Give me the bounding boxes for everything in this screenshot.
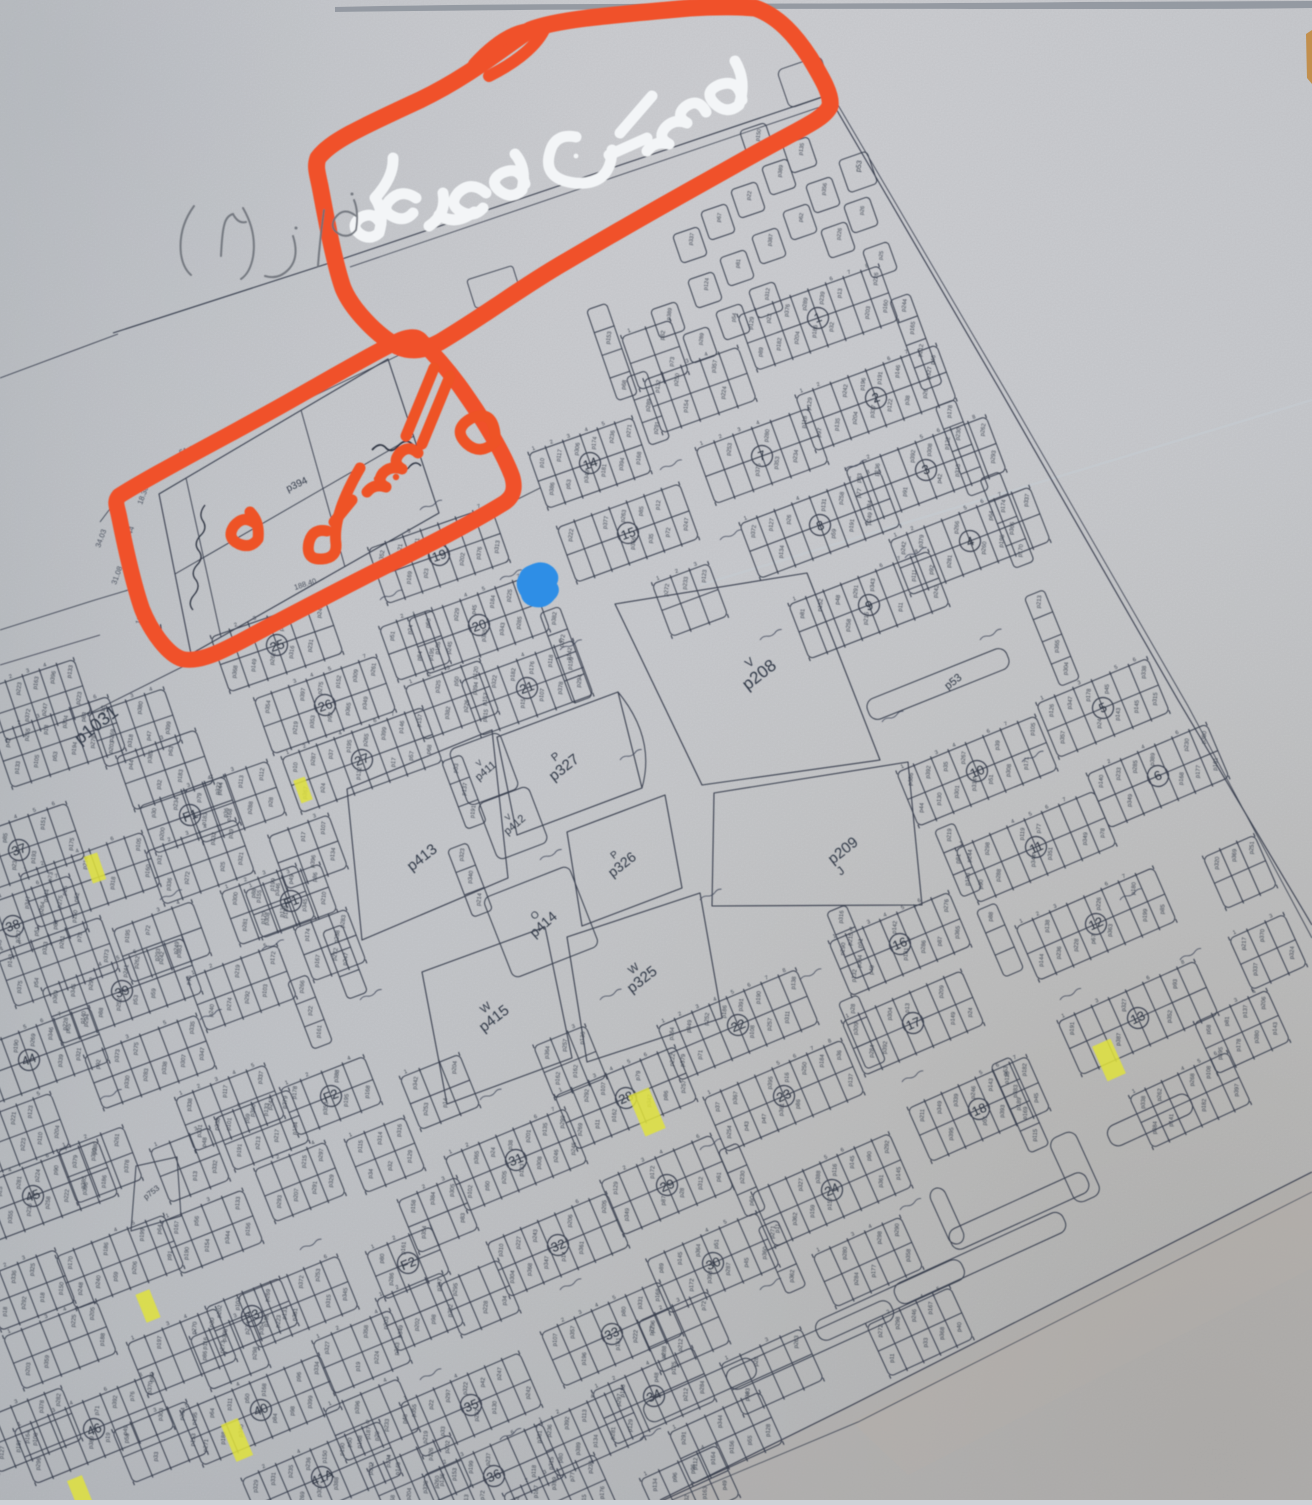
svg-text:p230: p230 xyxy=(588,1460,595,1473)
svg-text:p153: p153 xyxy=(190,1433,197,1446)
svg-text:p178: p178 xyxy=(1086,688,1093,701)
svg-text:p308: p308 xyxy=(1006,764,1013,777)
svg-text:p232: p232 xyxy=(684,1494,691,1500)
svg-text:p55: p55 xyxy=(747,1435,754,1445)
svg-text:p399: p399 xyxy=(552,1477,559,1490)
svg-text:p22: p22 xyxy=(429,1400,436,1410)
svg-text:p49: p49 xyxy=(722,1480,729,1490)
svg-text:p246: p246 xyxy=(971,1086,978,1099)
svg-text:p167: p167 xyxy=(533,1485,540,1498)
svg-text:p295: p295 xyxy=(452,1283,459,1296)
svg-text:p222: p222 xyxy=(670,1053,677,1066)
svg-text:p327: p327 xyxy=(324,1341,331,1354)
svg-text:p269: p269 xyxy=(577,1123,584,1136)
svg-text:p81: p81 xyxy=(799,608,806,618)
svg-text:p129: p129 xyxy=(613,1181,620,1194)
svg-text:p149: p149 xyxy=(395,1462,402,1475)
svg-text:p338: p338 xyxy=(1141,665,1148,678)
svg-text:p355: p355 xyxy=(411,1404,418,1417)
svg-text:p128: p128 xyxy=(765,1424,772,1437)
svg-text:p286: p286 xyxy=(921,940,928,953)
svg-text:p35: p35 xyxy=(943,761,950,771)
svg-text:p392: p392 xyxy=(564,1416,571,1429)
svg-text:p383: p383 xyxy=(1013,1085,1020,1098)
svg-text:p290: p290 xyxy=(894,1223,901,1236)
svg-text:p177: p177 xyxy=(1195,765,1202,778)
svg-text:p24: p24 xyxy=(1097,718,1104,729)
svg-text:p168: p168 xyxy=(261,1383,268,1396)
svg-text:p113: p113 xyxy=(582,1409,589,1422)
svg-text:p213: p213 xyxy=(463,1494,470,1500)
svg-text:p334: p334 xyxy=(314,1360,321,1374)
svg-text:p219: p219 xyxy=(946,828,953,841)
svg-text:p349: p349 xyxy=(937,1101,944,1114)
svg-text:p133: p133 xyxy=(965,873,972,886)
svg-text:p134: p134 xyxy=(593,1434,600,1448)
svg-text:p85: p85 xyxy=(1160,904,1167,914)
svg-text:p392: p392 xyxy=(925,765,932,778)
svg-text:p158: p158 xyxy=(410,1200,417,1213)
svg-text:p399: p399 xyxy=(307,1395,314,1408)
svg-text:p360: p360 xyxy=(762,1246,769,1259)
svg-text:p172: p172 xyxy=(689,1278,696,1291)
svg-text:p182: p182 xyxy=(1022,1063,1029,1076)
svg-text:p96: p96 xyxy=(691,1464,698,1474)
svg-text:p311: p311 xyxy=(227,1398,234,1411)
svg-text:p329: p329 xyxy=(253,1480,260,1493)
svg-text:p90: p90 xyxy=(53,1165,60,1175)
svg-text:p71: p71 xyxy=(698,1050,705,1060)
svg-text:p391: p391 xyxy=(738,998,745,1011)
svg-text:p254: p254 xyxy=(726,1124,733,1138)
svg-text:p177: p177 xyxy=(871,1264,878,1277)
svg-text:p246: p246 xyxy=(911,1309,918,1322)
svg-text:p212: p212 xyxy=(678,1338,685,1351)
svg-text:p339: p339 xyxy=(953,1093,960,1106)
svg-text:p269: p269 xyxy=(299,1491,306,1500)
svg-text:p119: p119 xyxy=(1019,828,1026,841)
svg-text:p86: p86 xyxy=(663,1090,670,1100)
svg-text:p251: p251 xyxy=(1249,841,1256,854)
svg-text:p250: p250 xyxy=(801,1062,808,1075)
svg-text:p222: p222 xyxy=(633,1330,640,1343)
svg-text:p268: p268 xyxy=(1190,1073,1197,1086)
svg-text:p50: p50 xyxy=(347,1437,354,1447)
svg-text:p292: p292 xyxy=(584,1089,591,1102)
svg-text:p80: p80 xyxy=(558,1453,565,1463)
svg-text:p130: p130 xyxy=(492,1401,499,1414)
svg-text:p22: p22 xyxy=(307,1006,314,1016)
svg-text:p205: p205 xyxy=(501,1171,508,1184)
svg-text:p159: p159 xyxy=(810,1205,817,1218)
svg-text:p284: p284 xyxy=(854,1271,861,1285)
svg-text:p145: p145 xyxy=(849,1156,856,1169)
svg-text:p89: p89 xyxy=(659,1263,666,1273)
svg-text:p130: p130 xyxy=(936,792,943,805)
svg-text:p196: p196 xyxy=(581,1352,588,1365)
svg-text:p45: p45 xyxy=(744,1258,751,1268)
svg-text:p33: p33 xyxy=(923,1338,930,1348)
svg-text:p311: p311 xyxy=(784,1011,791,1024)
svg-text:p395: p395 xyxy=(948,1127,955,1140)
svg-text:p292: p292 xyxy=(884,1140,891,1153)
svg-text:p312: p312 xyxy=(698,1177,705,1190)
svg-text:p34: p34 xyxy=(368,1168,375,1179)
svg-text:p271: p271 xyxy=(770,1226,777,1239)
svg-text:p364: p364 xyxy=(695,1243,702,1257)
svg-text:p102: p102 xyxy=(467,1185,474,1198)
svg-text:p204: p204 xyxy=(406,1487,413,1500)
svg-text:p91: p91 xyxy=(902,487,909,497)
svg-text:p237: p237 xyxy=(486,1453,493,1466)
svg-text:p364: p364 xyxy=(857,954,864,968)
svg-text:p140: p140 xyxy=(1098,775,1105,788)
svg-text:p246: p246 xyxy=(553,1149,560,1162)
svg-text:p389: p389 xyxy=(576,1442,583,1455)
svg-text:p322: p322 xyxy=(463,1382,470,1395)
svg-text:p362: p362 xyxy=(792,1212,799,1225)
svg-text:p50: p50 xyxy=(244,1393,251,1403)
svg-text:p212: p212 xyxy=(683,1388,690,1401)
svg-text:p362: p362 xyxy=(789,1269,796,1282)
svg-text:p358: p358 xyxy=(363,1325,370,1338)
svg-text:p172: p172 xyxy=(650,1166,657,1179)
svg-text:p98: p98 xyxy=(290,1406,297,1416)
svg-text:p357: p357 xyxy=(1060,731,1067,744)
svg-text:p34: p34 xyxy=(502,1295,509,1306)
svg-text:p257: p257 xyxy=(681,1080,688,1093)
svg-text:p206: p206 xyxy=(567,1214,574,1227)
svg-text:p86: p86 xyxy=(202,1351,209,1361)
svg-text:p134: p134 xyxy=(652,1477,659,1491)
svg-text:p58: p58 xyxy=(124,1433,131,1443)
svg-text:p361: p361 xyxy=(878,1174,885,1187)
svg-text:p98: p98 xyxy=(431,1314,438,1324)
svg-text:p86: p86 xyxy=(312,872,319,882)
svg-text:p143: p143 xyxy=(1115,708,1122,721)
svg-text:p135: p135 xyxy=(542,1122,549,1135)
svg-text:p215: p215 xyxy=(848,932,855,945)
svg-text:p176: p176 xyxy=(599,1486,606,1499)
svg-text:p33: p33 xyxy=(440,1426,447,1436)
svg-text:p47: p47 xyxy=(761,1114,768,1124)
svg-text:p365: p365 xyxy=(474,1151,481,1164)
svg-text:p13: p13 xyxy=(192,1171,199,1181)
svg-text:p280: p280 xyxy=(842,1247,849,1260)
svg-text:p137: p137 xyxy=(848,1073,855,1086)
svg-text:p228: p228 xyxy=(1074,938,1081,951)
svg-text:p352: p352 xyxy=(1167,1010,1174,1023)
svg-text:p199: p199 xyxy=(1142,909,1149,922)
svg-text:p156: p156 xyxy=(729,1440,736,1453)
svg-text:p81: p81 xyxy=(956,854,963,864)
svg-text:p59: p59 xyxy=(245,1113,252,1123)
svg-text:p126: p126 xyxy=(1049,704,1056,717)
svg-text:p281: p281 xyxy=(610,1427,617,1440)
svg-text:p143: p143 xyxy=(988,1078,995,1091)
svg-text:p87: p87 xyxy=(661,1196,668,1206)
svg-text:p60: p60 xyxy=(749,1196,756,1206)
svg-text:p77: p77 xyxy=(856,488,863,498)
svg-text:p39: p39 xyxy=(995,740,1002,750)
svg-text:p396: p396 xyxy=(355,1401,362,1414)
svg-text:p19: p19 xyxy=(355,1362,362,1372)
svg-text:p349: p349 xyxy=(686,1020,693,1033)
svg-text:p163: p163 xyxy=(702,1486,709,1499)
svg-text:p309: p309 xyxy=(853,1022,860,1035)
svg-text:p242: p242 xyxy=(526,1386,533,1399)
svg-text:p388: p388 xyxy=(815,1170,822,1183)
svg-text:p211: p211 xyxy=(919,1109,926,1122)
svg-text:p145: p145 xyxy=(896,1167,903,1180)
svg-text:p145: p145 xyxy=(677,1252,684,1265)
svg-text:p327: p327 xyxy=(798,1178,805,1191)
svg-text:p30: p30 xyxy=(209,1318,216,1328)
svg-text:p227: p227 xyxy=(516,1236,523,1249)
svg-text:p161: p161 xyxy=(1213,757,1220,770)
svg-text:p28: p28 xyxy=(850,1004,857,1014)
svg-text:p144: p144 xyxy=(1039,953,1046,967)
svg-text:p301: p301 xyxy=(954,785,961,798)
svg-text:p48: p48 xyxy=(835,595,842,605)
svg-text:p129: p129 xyxy=(628,1419,635,1432)
svg-text:p235: p235 xyxy=(288,1465,295,1478)
svg-text:p61: p61 xyxy=(716,1172,723,1182)
svg-text:p48: p48 xyxy=(202,1137,209,1147)
svg-text:p32: p32 xyxy=(387,1161,394,1171)
svg-text:p107: p107 xyxy=(552,1333,559,1346)
svg-text:p349: p349 xyxy=(624,1208,631,1221)
svg-text:p164: p164 xyxy=(711,1451,718,1465)
svg-text:p233: p233 xyxy=(384,1419,391,1432)
svg-text:p395: p395 xyxy=(1218,1047,1225,1060)
svg-text:p84: p84 xyxy=(272,1412,279,1423)
svg-text:p126: p126 xyxy=(428,1448,435,1461)
svg-text:p167: p167 xyxy=(928,1301,935,1314)
svg-text:p76: p76 xyxy=(129,1391,136,1401)
svg-text:p368: p368 xyxy=(939,1327,946,1340)
svg-text:p36: p36 xyxy=(836,1050,843,1060)
svg-text:p96: p96 xyxy=(296,1372,303,1382)
svg-text:p141: p141 xyxy=(1169,1114,1176,1127)
svg-text:p92: p92 xyxy=(95,1059,102,1069)
svg-text:p297: p297 xyxy=(616,1393,623,1406)
svg-text:p236: p236 xyxy=(547,1424,554,1437)
svg-text:p162: p162 xyxy=(611,1109,618,1122)
svg-text:p105: p105 xyxy=(1030,723,1037,736)
svg-text:p77: p77 xyxy=(1036,823,1043,833)
svg-text:p303: p303 xyxy=(383,1316,390,1329)
svg-text:p80: p80 xyxy=(149,1372,156,1382)
svg-text:p380: p380 xyxy=(1254,1030,1261,1043)
svg-text:p387: p387 xyxy=(1116,1033,1123,1046)
svg-text:p245: p245 xyxy=(571,1142,578,1155)
svg-text:p67: p67 xyxy=(1091,934,1098,944)
svg-text:p191: p191 xyxy=(1069,1022,1076,1035)
svg-text:p351: p351 xyxy=(1047,847,1054,860)
svg-text:p96: p96 xyxy=(672,1472,679,1482)
svg-text:p199: p199 xyxy=(468,1460,475,1473)
svg-text:p87: p87 xyxy=(937,936,944,946)
svg-text:p168: p168 xyxy=(655,1288,662,1301)
svg-text:p64: p64 xyxy=(157,1223,164,1234)
svg-text:p337: p337 xyxy=(1253,963,1260,976)
svg-text:p79: p79 xyxy=(635,1071,642,1081)
svg-text:p42: p42 xyxy=(480,1377,487,1387)
svg-text:p184: p184 xyxy=(819,1053,826,1067)
svg-text:p291: p291 xyxy=(681,1431,688,1444)
svg-text:p299: p299 xyxy=(560,1115,567,1128)
svg-text:p108: p108 xyxy=(749,1025,756,1038)
svg-text:p28: p28 xyxy=(679,1188,686,1198)
svg-text:p80: p80 xyxy=(621,1306,628,1316)
svg-text:p304: p304 xyxy=(887,1006,894,1020)
svg-text:p228: p228 xyxy=(483,1300,490,1313)
svg-text:p19: p19 xyxy=(105,1432,112,1442)
svg-text:p107: p107 xyxy=(600,1082,607,1095)
svg-text:p365: p365 xyxy=(955,926,962,939)
svg-text:p324: p324 xyxy=(1289,945,1296,959)
svg-text:p116: p116 xyxy=(832,1164,839,1177)
svg-text:p224: p224 xyxy=(374,1350,381,1364)
svg-text:p64: p64 xyxy=(209,1407,216,1418)
svg-text:p205: p205 xyxy=(601,1200,608,1213)
svg-text:p190: p190 xyxy=(756,991,763,1004)
svg-text:p37: p37 xyxy=(715,1102,722,1112)
svg-text:p296: p296 xyxy=(650,1320,657,1333)
svg-text:p331: p331 xyxy=(638,1296,645,1309)
svg-text:p24: p24 xyxy=(968,1007,975,1018)
svg-text:p178: p178 xyxy=(1236,1038,1243,1051)
svg-text:p331: p331 xyxy=(270,1472,277,1485)
svg-text:p236: p236 xyxy=(305,1457,312,1470)
svg-text:p349: p349 xyxy=(1082,832,1089,845)
svg-text:p45: p45 xyxy=(1104,684,1111,694)
svg-text:p93: p93 xyxy=(1172,979,1179,989)
svg-text:p286: p286 xyxy=(388,1272,395,1285)
svg-text:p326: p326 xyxy=(423,1480,430,1493)
svg-text:p18: p18 xyxy=(2,1307,9,1317)
svg-text:p363: p363 xyxy=(394,1342,401,1355)
svg-text:p276: p276 xyxy=(943,899,950,912)
svg-text:p358: p358 xyxy=(390,1495,397,1500)
svg-text:p297: p297 xyxy=(445,1389,452,1402)
svg-text:p182: p182 xyxy=(1201,1099,1208,1112)
svg-text:p262: p262 xyxy=(1157,1088,1164,1101)
svg-text:p217: p217 xyxy=(1241,937,1248,950)
svg-text:p80: p80 xyxy=(379,1253,386,1263)
svg-text:p350: p350 xyxy=(1201,731,1208,744)
svg-text:p90: p90 xyxy=(867,1151,874,1161)
svg-text:p288: p288 xyxy=(996,869,1003,882)
svg-text:p397: p397 xyxy=(1234,1084,1241,1097)
svg-text:p86: p86 xyxy=(795,1099,802,1109)
svg-text:p347: p347 xyxy=(1067,696,1074,709)
svg-text:p347: p347 xyxy=(544,1256,551,1269)
svg-text:p349: p349 xyxy=(398,1325,405,1338)
svg-text:p226: p226 xyxy=(1096,897,1103,910)
svg-text:p88: p88 xyxy=(988,912,995,922)
svg-text:p298: p298 xyxy=(877,1231,884,1244)
svg-text:p247: p247 xyxy=(497,1367,504,1380)
svg-text:p308: p308 xyxy=(536,1156,543,1169)
svg-text:p48: p48 xyxy=(402,1414,409,1424)
svg-text:p143: p143 xyxy=(1272,1022,1279,1035)
svg-text:p18: p18 xyxy=(39,1292,46,1302)
svg-text:p71: p71 xyxy=(94,1405,101,1415)
svg-text:p298: p298 xyxy=(984,842,991,855)
svg-text:p150: p150 xyxy=(322,1450,329,1463)
svg-text:p206: p206 xyxy=(1261,996,1268,1009)
svg-text:p267: p267 xyxy=(961,751,968,764)
svg-text:p344: p344 xyxy=(717,1414,724,1428)
svg-text:p320: p320 xyxy=(1214,856,1221,869)
svg-text:p142: p142 xyxy=(892,921,899,934)
svg-text:p51: p51 xyxy=(988,774,995,784)
svg-text:p368: p368 xyxy=(527,1263,534,1276)
svg-text:p236: p236 xyxy=(1056,946,1063,959)
svg-text:p168: p168 xyxy=(1179,772,1186,785)
svg-text:p363: p363 xyxy=(1107,924,1114,937)
svg-text:p230: p230 xyxy=(740,1170,747,1183)
svg-text:p361: p361 xyxy=(579,1241,586,1254)
svg-text:p58: p58 xyxy=(1206,1025,1213,1035)
svg-text:p219: p219 xyxy=(423,1431,430,1444)
svg-text:p284: p284 xyxy=(699,1380,706,1394)
svg-text:p40: p40 xyxy=(957,1322,964,1332)
svg-text:p77: p77 xyxy=(570,1472,577,1482)
svg-text:p186: p186 xyxy=(721,1005,728,1018)
svg-text:p11: p11 xyxy=(898,602,905,612)
svg-text:p50: p50 xyxy=(485,1181,492,1191)
svg-text:p42: p42 xyxy=(937,474,944,484)
svg-text:p145: p145 xyxy=(1134,700,1141,713)
svg-text:p230: p230 xyxy=(1184,738,1191,751)
svg-text:p370: p370 xyxy=(1259,929,1266,942)
svg-text:p393: p393 xyxy=(745,1388,752,1401)
svg-text:p72: p72 xyxy=(701,1301,708,1311)
svg-text:p81: p81 xyxy=(1224,1016,1231,1026)
svg-text:p327: p327 xyxy=(1121,998,1128,1011)
svg-text:p51: p51 xyxy=(714,1239,721,1249)
svg-text:p315: p315 xyxy=(1152,692,1159,705)
svg-text:p24: p24 xyxy=(490,1146,497,1157)
svg-text:p43: p43 xyxy=(744,1121,751,1131)
svg-text:p187: p187 xyxy=(365,1426,372,1439)
svg-text:p384: p384 xyxy=(1152,1120,1159,1134)
svg-text:p285: p285 xyxy=(1132,760,1139,773)
svg-text:p138: p138 xyxy=(1045,919,1052,932)
svg-text:p59: p59 xyxy=(113,1271,120,1281)
svg-text:p72: p72 xyxy=(480,1490,487,1500)
svg-text:p78: p78 xyxy=(1100,828,1107,838)
svg-text:p310: p310 xyxy=(498,1243,505,1256)
svg-text:p358: p358 xyxy=(906,1249,913,1262)
svg-text:p201: p201 xyxy=(525,1129,532,1142)
svg-text:p233: p233 xyxy=(1116,767,1123,780)
svg-text:p83: p83 xyxy=(460,1213,467,1223)
svg-text:p16: p16 xyxy=(784,1072,791,1082)
svg-text:p138: p138 xyxy=(791,976,798,989)
svg-text:p26: p26 xyxy=(786,514,793,524)
svg-text:p56: p56 xyxy=(194,1216,201,1226)
svg-text:p288: p288 xyxy=(661,1346,668,1359)
svg-text:p108: p108 xyxy=(1206,1066,1213,1079)
svg-text:p136: p136 xyxy=(439,1473,446,1486)
svg-text:p11: p11 xyxy=(595,1119,602,1129)
svg-text:p369: p369 xyxy=(1232,849,1239,862)
svg-text:p392: p392 xyxy=(882,1041,889,1054)
